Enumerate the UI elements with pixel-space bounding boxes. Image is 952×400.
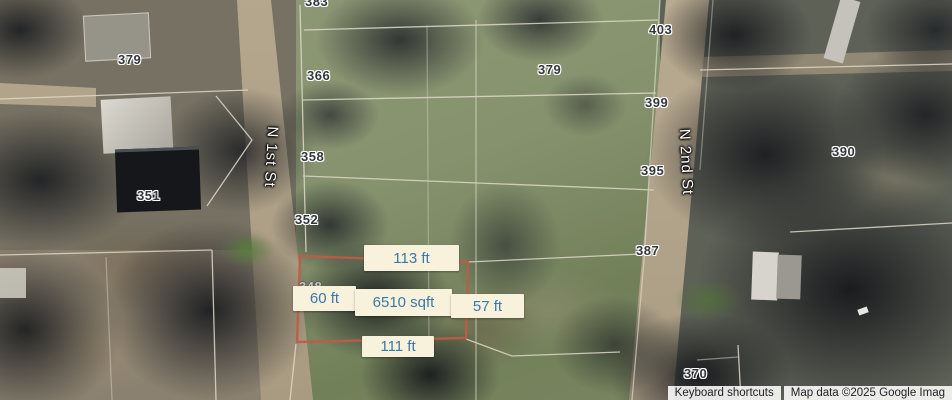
address-label: 383 [305,0,328,9]
address-label: 352 [295,212,318,227]
street-label-n-1st-st: N 1st St [261,126,281,188]
address-label: 379 [538,62,561,77]
address-label: 399 [645,95,668,110]
address-label: 351 [137,188,160,203]
address-label: 379 [118,52,141,67]
address-label: 370 [684,366,707,381]
address-label: 395 [641,163,664,178]
address-label: 387 [636,243,659,258]
keyboard-shortcuts-button[interactable]: Keyboard shortcuts [668,386,781,400]
map-canvas[interactable]: 383 403 379 366 379 399 390 358 395 351 … [0,0,952,400]
address-label: 358 [301,149,324,164]
street-label-n-2nd-st: N 2nd St [676,128,696,195]
measurement-area: 6510 sqft [355,289,452,316]
measurement-top-length: 113 ft [364,245,459,271]
map-attribution: Keyboard shortcuts Map data ©2025 Google… [668,386,952,400]
address-label: 366 [307,68,330,83]
address-label: 403 [649,22,672,37]
address-label: 390 [832,144,855,159]
measurement-bottom-length: 111 ft [362,336,434,357]
measurement-right-length: 57 ft [451,294,524,318]
map-data-attribution: Map data ©2025 Google Imag [784,386,952,400]
measurement-left-length: 60 ft [293,286,356,311]
